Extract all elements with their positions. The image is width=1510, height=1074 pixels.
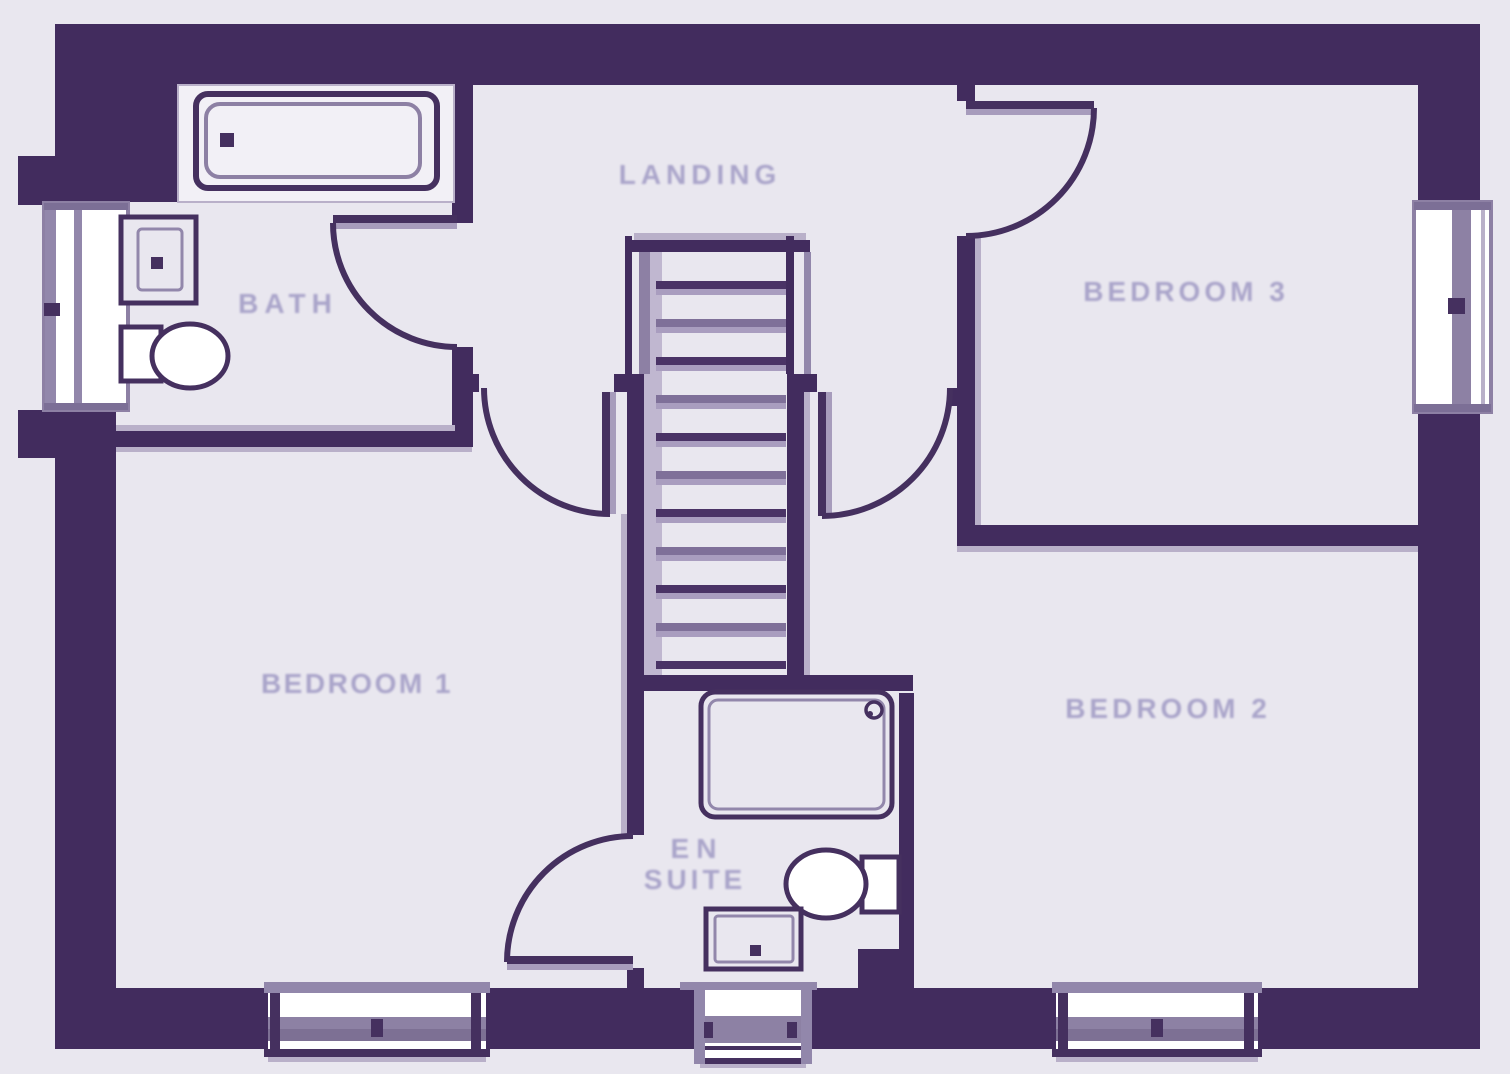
svg-text:BATH: BATH [238, 288, 338, 319]
svg-text:LANDING: LANDING [619, 159, 782, 190]
svg-text:SUITE: SUITE [644, 864, 746, 895]
svg-text:EN: EN [671, 833, 724, 864]
svg-text:BEDROOM 1: BEDROOM 1 [261, 668, 453, 699]
svg-text:BEDROOM 3: BEDROOM 3 [1083, 276, 1289, 307]
svg-text:BEDROOM 2: BEDROOM 2 [1065, 693, 1271, 724]
